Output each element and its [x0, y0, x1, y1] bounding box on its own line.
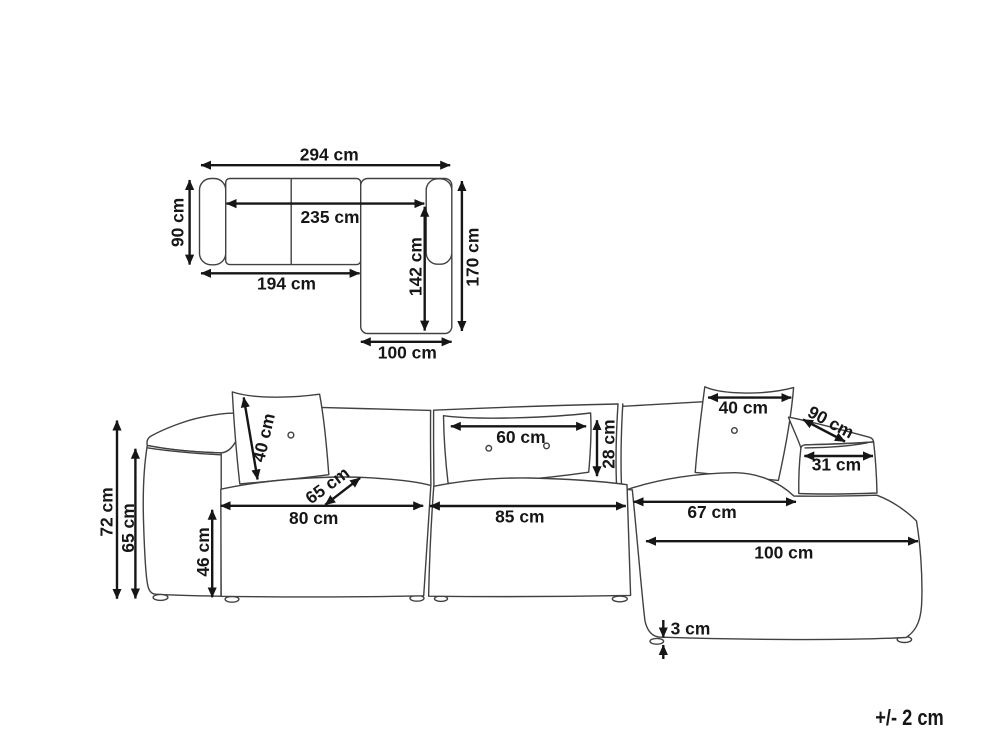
svg-text:3 cm: 3 cm	[671, 618, 711, 638]
svg-text:31 cm: 31 cm	[812, 455, 861, 475]
svg-text:194 cm: 194 cm	[257, 274, 316, 294]
svg-text:80 cm: 80 cm	[289, 508, 338, 528]
svg-text:+/- 2 cm: +/- 2 cm	[875, 707, 943, 731]
svg-text:65 cm: 65 cm	[118, 503, 138, 552]
svg-text:90 cm: 90 cm	[168, 198, 188, 247]
svg-text:67 cm: 67 cm	[687, 502, 736, 522]
svg-text:100 cm: 100 cm	[754, 542, 813, 562]
svg-text:40 cm: 40 cm	[719, 398, 768, 418]
svg-text:46 cm: 46 cm	[193, 527, 213, 576]
svg-text:235 cm: 235 cm	[301, 207, 360, 227]
svg-text:100 cm: 100 cm	[378, 342, 437, 362]
svg-text:28 cm: 28 cm	[599, 419, 619, 468]
svg-text:60 cm: 60 cm	[496, 427, 545, 447]
svg-text:142 cm: 142 cm	[405, 237, 425, 296]
svg-text:85 cm: 85 cm	[495, 506, 544, 526]
svg-text:72 cm: 72 cm	[97, 487, 117, 536]
svg-text:170 cm: 170 cm	[462, 228, 482, 287]
svg-text:294 cm: 294 cm	[300, 144, 359, 164]
